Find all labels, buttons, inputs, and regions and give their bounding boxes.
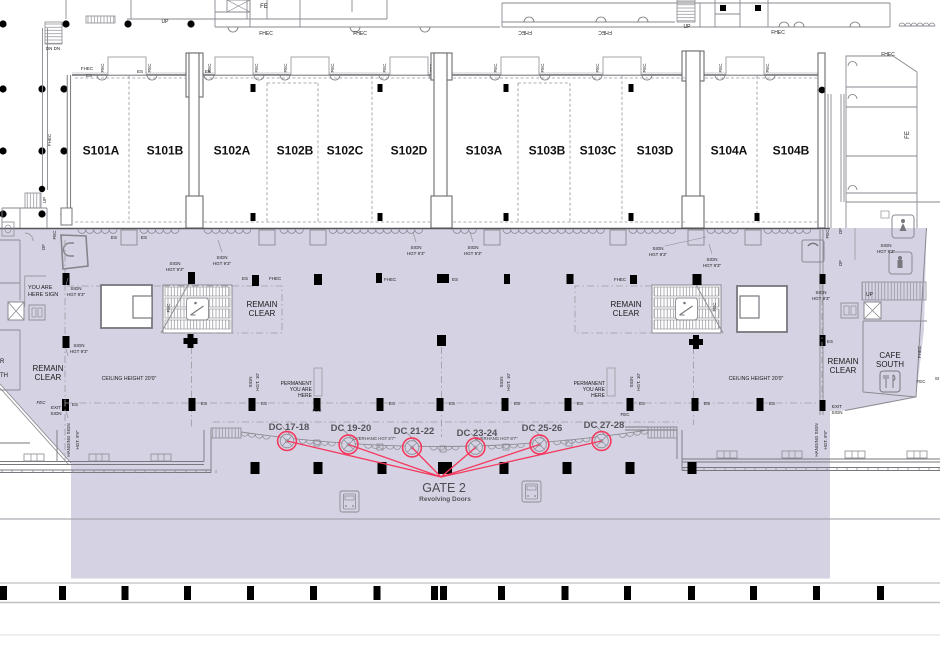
svg-text:FEC: FEC <box>642 63 647 73</box>
svg-text:FHEC: FHEC <box>259 31 273 37</box>
svg-text:FEC: FEC <box>917 379 927 384</box>
svg-text:FHEC: FHEC <box>269 276 282 281</box>
svg-text:FE: FE <box>905 131 911 139</box>
svg-text:ES: ES <box>704 401 710 406</box>
svg-text:S102A: S102A <box>214 144 251 158</box>
svg-text:FEC: FEC <box>718 63 723 73</box>
svg-text:DC 17-18: DC 17-18 <box>269 422 310 433</box>
svg-text:FEC: FEC <box>493 63 498 73</box>
svg-text:FEC: FEC <box>765 63 770 73</box>
svg-text:S101A: S101A <box>83 144 120 158</box>
svg-text:SIGN: SIGN <box>467 245 478 250</box>
svg-text:FHEC: FHEC <box>917 345 922 358</box>
svg-text:SIGN: SIGN <box>73 343 84 348</box>
svg-text:S101B: S101B <box>147 144 184 158</box>
svg-text:CEILING HEIGHT 20'0": CEILING HEIGHT 20'0" <box>729 376 784 382</box>
svg-text:FEC: FEC <box>825 229 830 239</box>
svg-text:FHEC: FHEC <box>598 29 612 35</box>
svg-text:FEC: FEC <box>540 63 545 73</box>
svg-text:SIGN: SIGN <box>50 411 61 416</box>
svg-text:ES: ES <box>514 401 520 406</box>
svg-text:FHEC: FHEC <box>614 277 627 282</box>
svg-text:DC 19-20: DC 19-20 <box>331 423 372 434</box>
svg-text:FEC: FEC <box>283 63 288 73</box>
svg-text:FEC: FEC <box>712 302 717 312</box>
svg-text:FHEC: FHEC <box>384 277 397 282</box>
svg-text:REMAIN: REMAIN <box>827 357 858 366</box>
svg-text:HGT 9'3": HGT 9'3" <box>407 251 426 256</box>
svg-text:ES: ES <box>141 235 147 240</box>
svg-text:HGT 9'3": HGT 9'3" <box>812 296 831 301</box>
svg-text:DC 23-24: DC 23-24 <box>457 428 498 439</box>
svg-text:CLEAR: CLEAR <box>35 373 62 382</box>
svg-text:FHEC: FHEC <box>81 66 94 71</box>
svg-text:HGT 9'3": HGT 9'3" <box>649 252 668 257</box>
svg-text:FEC: FEC <box>382 63 387 73</box>
svg-text:S103C: S103C <box>580 144 617 158</box>
svg-text:HERE: HERE <box>591 393 606 399</box>
svg-text:S104A: S104A <box>711 144 748 158</box>
svg-text:FHEC: FHEC <box>518 29 532 35</box>
svg-text:HANGING SIGN: HANGING SIGN <box>814 423 819 456</box>
svg-text:S102B: S102B <box>277 144 314 158</box>
svg-text:HGT. 10': HGT. 10' <box>636 373 641 391</box>
svg-text:HGT 9'3": HGT 9'3" <box>67 292 86 297</box>
svg-text:SIGN: SIGN <box>499 376 504 387</box>
svg-text:ES: ES <box>111 235 117 240</box>
svg-text:FEC: FEC <box>621 412 631 417</box>
svg-text:EXIT: EXIT <box>51 405 61 410</box>
svg-text:SIGN: SIGN <box>880 243 891 248</box>
svg-text:DF: DF <box>838 260 843 266</box>
svg-text:CAFE: CAFE <box>879 351 900 360</box>
svg-text:UP: UP <box>866 292 874 298</box>
svg-text:ES: ES <box>389 401 395 406</box>
svg-text:FEC: FEC <box>100 63 105 73</box>
svg-text:ES: ES <box>137 69 143 74</box>
svg-text:R: R <box>0 359 5 365</box>
svg-text:UP: UP <box>42 197 47 203</box>
svg-text:S103A: S103A <box>466 144 503 158</box>
svg-text:REMAIN: REMAIN <box>246 300 277 309</box>
svg-text:HGT. 9'9": HGT. 9'9" <box>823 430 828 449</box>
svg-text:CLEAR: CLEAR <box>613 309 640 318</box>
svg-text:FHEC: FHEC <box>353 31 367 37</box>
svg-text:ES: ES <box>452 277 458 282</box>
svg-text:FEC: FEC <box>313 408 323 413</box>
svg-text:HGT 9'3": HGT 9'3" <box>703 263 722 268</box>
svg-text:SIGN: SIGN <box>70 286 81 291</box>
svg-text:FEC: FEC <box>147 63 152 73</box>
svg-text:EXIT: EXIT <box>832 404 842 409</box>
svg-text:ES: ES <box>261 401 267 406</box>
svg-text:HERE SIGN: HERE SIGN <box>28 292 58 298</box>
svg-text:S103D: S103D <box>637 144 674 158</box>
svg-text:ES: ES <box>827 339 833 344</box>
svg-text:HGT. 9'9": HGT. 9'9" <box>75 430 80 449</box>
svg-text:HGT 9'3": HGT 9'3" <box>70 349 89 354</box>
svg-text:HGT 9'3": HGT 9'3" <box>464 251 483 256</box>
svg-text:S102D: S102D <box>391 144 428 158</box>
svg-text:S102C: S102C <box>327 144 364 158</box>
svg-text:S103B: S103B <box>529 144 566 158</box>
svg-text:HGT. 10': HGT. 10' <box>255 373 260 391</box>
svg-text:CLEAR: CLEAR <box>830 366 857 375</box>
svg-text:ES: ES <box>242 276 248 281</box>
svg-text:DF: DF <box>838 228 843 234</box>
svg-text:HGT 9'3": HGT 9'3" <box>166 267 185 272</box>
svg-text:ES: ES <box>639 401 645 406</box>
svg-text:DF: DF <box>41 244 46 250</box>
svg-text:YOU ARE: YOU ARE <box>28 285 53 291</box>
svg-text:FEC: FEC <box>254 63 259 73</box>
svg-text:ES: ES <box>205 69 211 74</box>
svg-text:DC 25-26: DC 25-26 <box>522 423 563 434</box>
svg-text:FEC: FEC <box>52 230 57 240</box>
svg-text:CLEAR: CLEAR <box>249 309 276 318</box>
svg-text:GATE 2: GATE 2 <box>422 481 466 495</box>
svg-text:HGT 9'3": HGT 9'3" <box>877 249 896 254</box>
svg-text:ES: ES <box>201 401 207 406</box>
svg-text:SIGN: SIGN <box>652 246 663 251</box>
svg-text:UP: UP <box>684 24 692 30</box>
svg-text:REMAIN: REMAIN <box>610 300 641 309</box>
svg-text:SIGN: SIGN <box>706 257 717 262</box>
svg-text:SOUTH: SOUTH <box>876 360 904 369</box>
svg-text:S104B: S104B <box>773 144 810 158</box>
svg-text:ES: ES <box>577 401 583 406</box>
svg-text:FEC: FEC <box>166 303 171 313</box>
svg-text:FHEC: FHEC <box>771 30 785 36</box>
svg-text:SIGN: SIGN <box>216 255 227 260</box>
svg-text:Revolving Doors: Revolving Doors <box>419 496 471 503</box>
svg-text:HGT. 10': HGT. 10' <box>506 373 511 391</box>
svg-text:HANGING SIGN: HANGING SIGN <box>66 423 71 456</box>
svg-text:SIGN: SIGN <box>410 245 421 250</box>
svg-text:SIGN: SIGN <box>831 410 842 415</box>
svg-text:FEC: FEC <box>595 63 600 73</box>
svg-text:REMAIN: REMAIN <box>32 364 63 373</box>
svg-text:OVERHANG HGT 8'7": OVERHANG HGT 8'7" <box>352 436 396 441</box>
svg-text:FE: FE <box>260 4 268 10</box>
svg-text:HERE: HERE <box>298 393 313 399</box>
svg-text:HGT 9'3": HGT 9'3" <box>213 261 232 266</box>
svg-text:FHEC: FHEC <box>47 133 52 146</box>
svg-text:DN DN: DN DN <box>46 46 60 51</box>
svg-text:ES: ES <box>769 401 775 406</box>
svg-text:SIGN: SIGN <box>169 261 180 266</box>
svg-text:FHEC: FHEC <box>881 52 895 58</box>
svg-text:UP: UP <box>162 19 170 25</box>
svg-text:FEC: FEC <box>330 63 335 73</box>
svg-text:SIGN: SIGN <box>629 376 634 387</box>
svg-text:DC 21-22: DC 21-22 <box>394 426 435 437</box>
svg-text:FEC: FEC <box>37 400 47 405</box>
svg-text:SI: SI <box>935 376 939 381</box>
svg-text:SIGN: SIGN <box>248 376 253 387</box>
svg-text:DC 27-28: DC 27-28 <box>584 420 625 431</box>
svg-text:SIGN: SIGN <box>815 290 826 295</box>
svg-text:ES: ES <box>449 401 455 406</box>
svg-text:TH: TH <box>0 373 8 379</box>
svg-text:CEILING HEIGHT 20'0": CEILING HEIGHT 20'0" <box>102 376 157 382</box>
